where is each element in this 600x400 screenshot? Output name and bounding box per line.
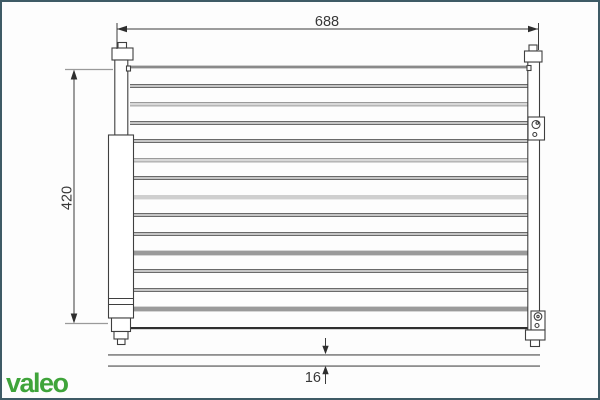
condenser-tube-line [130,159,528,161]
width-dimension: 688 [117,14,539,50]
height-dimension-label: 420 [60,186,76,210]
condenser-tube-line [130,232,528,233]
tank-bottom-foot [526,330,546,340]
condenser-tube-line [130,251,528,256]
condenser-drawing: 688 420 16 valeo [0,0,600,400]
receiver-drier [109,43,134,345]
condenser-tube-line [130,124,528,125]
technical-drawing-page: 688 420 16 valeo [0,0,600,400]
bottom-thickness-view [108,354,540,367]
condenser-tube-line [130,139,528,140]
condenser-tube-line [130,235,528,236]
bottom-view-bottom-line [108,365,540,367]
drier-bottom-fitting [114,332,128,340]
lower-mounting-bracket [531,311,545,330]
condenser-tube-line [130,161,528,162]
condenser-tube-line [130,272,528,273]
depth-dimension-label: 16 [305,370,321,386]
drier-bottom-block [112,318,131,332]
arrow-down-icon [322,346,328,355]
condenser-tube-line [130,269,528,270]
condenser-tube-line [130,158,528,159]
arrow-up-icon [322,366,328,375]
condenser-tube-line [130,102,528,103]
tank-bottom-nub [531,340,540,347]
condenser-tube-line [130,216,528,217]
arrow-left-icon [117,26,127,33]
right-tank [525,45,546,347]
condenser-tube-line [130,213,528,214]
tank-top-cap [525,51,543,62]
condenser-tube-line [130,84,528,85]
condenser-core-tubes [130,66,528,330]
drier-bottom-nub [118,339,126,345]
depth-dimension: 16 [305,338,329,386]
tank-tube [528,62,540,330]
condenser-tube-line [130,142,528,143]
condenser-tube-line [130,307,528,312]
bottom-view-top-line [108,354,540,356]
condenser-tube-line [130,105,528,106]
condenser-tube-line [130,327,528,329]
drier-upper-tube [115,60,128,135]
condenser-tube-line [130,121,528,122]
drier-cylinder [109,135,134,318]
width-dimension-label: 688 [315,14,339,30]
condenser-tube-line [130,87,528,88]
upper-mounting-bracket [528,117,545,140]
arrow-right-icon [528,26,538,33]
arrow-up-icon [71,70,78,80]
tank-connector-square [527,66,531,71]
tank-top-nub [529,45,537,51]
condenser-tube-line [130,195,528,199]
condenser-tube-line [130,288,528,289]
arrow-down-icon [71,314,78,324]
condenser-tube-line [130,291,528,292]
drier-top-cap [112,48,133,60]
drier-connector-square [127,66,131,71]
condenser-tube-line [130,66,528,69]
condenser-tube-line [130,103,528,105]
condenser-tube-line [130,176,528,177]
valeo-logo: valeo [6,368,69,398]
frame-border [1,1,599,399]
condenser-tube-line [130,179,528,180]
height-dimension: 420 [60,70,114,324]
